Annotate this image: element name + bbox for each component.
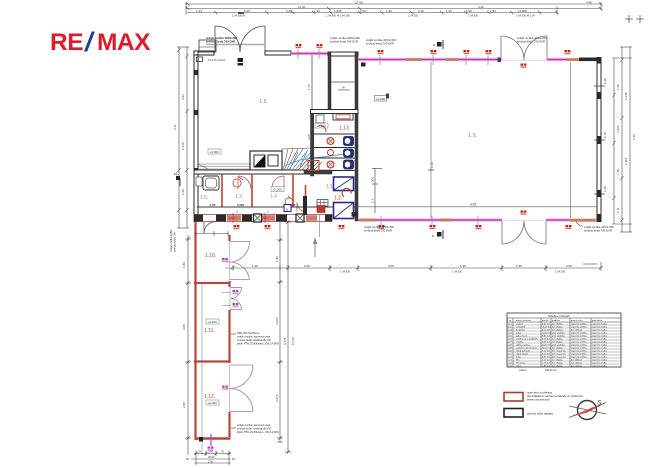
svg-text:obývací pokoj: obývací pokoj (516, 345, 530, 347)
svg-text:společenská místnost: společenská místnost (516, 347, 537, 350)
svg-text:1.90: 1.90 (460, 264, 466, 268)
svg-text:vápenná omítka: vápenná omítka (571, 344, 587, 347)
svg-text:ker. dlažba: ker. dlažba (552, 365, 563, 368)
svg-text:1.10.: 1.10. (205, 253, 216, 259)
svg-text:11.60: 11.60 (298, 5, 306, 9)
svg-text:vápenná malba: vápenná malba (592, 354, 608, 356)
svg-text:s1: s1 (174, 172, 178, 176)
svg-text:5.05: 5.05 (244, 9, 250, 13)
svg-text:1.40: 1.40 (252, 264, 258, 268)
svg-text:ker. dlažba: ker. dlažba (552, 362, 563, 365)
svg-text:vápenná omítka: vápenná omítka (571, 350, 587, 353)
svg-text:1.90: 1.90 (386, 9, 392, 13)
svg-text:vápenná malba: vápenná malba (592, 345, 608, 347)
svg-text:ker. dlažba: ker. dlažba (552, 347, 563, 350)
svg-text:1.75: 1.75 (307, 84, 311, 90)
svg-text:6.41: 6.41 (173, 124, 177, 130)
svg-text:2.445: 2.445 (181, 142, 185, 150)
svg-text:vápenná omítka: vápenná omítka (571, 326, 587, 329)
svg-text:1.04.300: 1.04.300 (555, 270, 566, 274)
svg-text:sklad zahradní: sklad zahradní (516, 350, 531, 353)
svg-text:překl. PTH 23,8/Keram., DN 14: překl. PTH 23,8/Keram., DN 14 SPO (237, 342, 279, 346)
svg-text:RE: RE (50, 29, 83, 56)
svg-text:WC ženy: WC ženy (516, 363, 526, 365)
svg-text:pokoj: pokoj (516, 333, 522, 335)
svg-text:8,20 m2: 8,20 m2 (542, 339, 551, 341)
svg-text:vápenná malba: vápenná malba (592, 351, 608, 353)
svg-text:vápenná omítka: vápenná omítka (571, 335, 587, 338)
svg-text:+0,000: +0,000 (376, 97, 386, 101)
svg-text:vápenná omítka: vápenná omítka (571, 353, 587, 356)
svg-text:8,90 m2: 8,90 m2 (542, 357, 551, 359)
svg-text:1.20: 1.20 (430, 162, 434, 168)
svg-text:poznámka: poznámka (592, 320, 603, 322)
svg-text:Tabulka místností: Tabulka místností (548, 314, 570, 318)
svg-text:vápenná omítka: vápenná omítka (571, 338, 587, 341)
svg-text:původní zdivo stávající: původní zdivo stávající (527, 412, 554, 416)
svg-text:1.05: 1.05 (210, 203, 216, 207)
svg-text:schodiště: schodiště (516, 326, 526, 329)
svg-text:vápenná omítka: vápenná omítka (571, 323, 587, 326)
svg-text:zrnitost šedá 700 DXR: zrnitost šedá 700 DXR (366, 42, 394, 46)
svg-text:1.04.300: 1.04.300 (340, 270, 351, 274)
svg-text:vápenná malba: vápenná malba (592, 360, 608, 362)
svg-text:vnější omítka, kamenná vata: vnější omítka, kamenná vata (237, 335, 271, 339)
svg-text:celkem: celkem (519, 369, 527, 372)
svg-text:ker. obklad: ker. obklad (571, 359, 582, 362)
svg-text:4.40: 4.40 (478, 5, 484, 9)
svg-text:ker. dlažba: ker. dlažba (552, 341, 563, 344)
svg-text:1.11: 1.11 (616, 207, 620, 213)
svg-text:vápenná malba: vápenná malba (592, 333, 608, 335)
svg-text:14,30 m2: 14,30 m2 (542, 333, 552, 335)
svg-text:č.m.: č.m. (508, 320, 513, 322)
svg-text:1.4.: 1.4. (270, 194, 278, 200)
svg-text:1.13: 1.13 (339, 126, 349, 132)
svg-text:vápenná malba: vápenná malba (592, 357, 608, 359)
svg-text:1.04.300 M: 1.04.300 M (232, 14, 245, 18)
svg-text:vápenná omítka: vápenná omítka (571, 332, 587, 335)
svg-text:vápenná malba: vápenná malba (592, 339, 608, 341)
svg-text:17.40: 17.40 (355, 0, 363, 4)
svg-text:3.225: 3.225 (275, 317, 279, 325)
svg-text:pokoj hosté: pokoj hosté (516, 335, 528, 338)
svg-text:9,80 m2: 9,80 m2 (542, 336, 551, 338)
svg-text:3.00: 3.00 (388, 264, 394, 268)
svg-text:+0,000: +0,000 (273, 188, 283, 192)
svg-text:4.05: 4.05 (470, 203, 476, 207)
svg-text:11,20 m2: 11,20 m2 (542, 327, 552, 329)
svg-text:SDK 300 S/125mm: SDK 300 S/125mm (237, 331, 259, 335)
svg-text:5,60 m2: 5,60 m2 (542, 324, 551, 326)
svg-text:nové zdivo a překlady: nové zdivo a překlady (527, 391, 553, 395)
svg-text:10.00: 10.00 (291, 337, 295, 345)
svg-text:1.90: 1.90 (208, 450, 214, 454)
svg-text:1.90: 1.90 (516, 264, 522, 268)
svg-text:86,10 m2: 86,10 m2 (542, 348, 552, 350)
svg-text:překl. PTH 23,8/Keram., DN 14: překl. PTH 23,8/Keram., DN 14 SPO (237, 430, 279, 434)
svg-text:1.30: 1.30 (446, 9, 452, 13)
svg-text:2.60: 2.60 (208, 459, 214, 463)
svg-text:zrnitost šedá 700 DXR: zrnitost šedá 700 DXR (364, 229, 392, 233)
svg-text:+0,000: +0,000 (210, 150, 220, 154)
svg-text:1.5.: 1.5. (200, 195, 208, 201)
svg-text:chodba: chodba (516, 342, 524, 344)
svg-text:W: W (342, 86, 345, 90)
svg-text:1.50: 1.50 (490, 9, 496, 13)
svg-text:vápenná malba: vápenná malba (592, 348, 608, 350)
svg-text:1.3.: 1.3. (235, 194, 243, 200)
svg-text:vápenná malba: vápenná malba (592, 330, 608, 332)
svg-text:1.9.: 1.9. (468, 133, 478, 139)
svg-text:2.00: 2.00 (304, 264, 310, 268)
svg-text:zrnitost šedá, tloušťka dle PD: zrnitost šedá, tloušťka dle PD (237, 338, 271, 342)
svg-text:vápenná omítka: vápenná omítka (571, 347, 587, 350)
svg-text:2,10 m2: 2,10 m2 (542, 363, 551, 365)
svg-text:1.8.: 1.8. (259, 99, 269, 105)
svg-text:3.075: 3.075 (275, 394, 279, 402)
svg-text:11.805: 11.805 (518, 9, 527, 13)
svg-text:1.48: 1.48 (616, 84, 620, 90)
svg-text:vnější omítka 425/2: vnější omítka 425/2 (169, 229, 173, 252)
svg-text:1.4: 1.4 (371, 198, 375, 203)
svg-text:vápenná malba: vápenná malba (592, 363, 608, 365)
svg-text:ker. dlažba: ker. dlažba (552, 326, 563, 329)
svg-text:sklad nářadí: sklad nářadí (516, 354, 528, 356)
svg-text:1.11.: 1.11. (204, 328, 215, 334)
svg-text:1,80 m2: 1,80 m2 (542, 366, 551, 368)
svg-text:4.94: 4.94 (181, 94, 185, 100)
svg-text:vápenná omítka: vápenná omítka (571, 341, 587, 344)
svg-text:bet. mazanina: bet. mazanina (552, 353, 567, 356)
svg-text:1.04.300: 1.04.300 (468, 14, 479, 18)
svg-text:2.115: 2.115 (624, 157, 628, 165)
svg-text:bet. mazanina: bet. mazanina (552, 350, 567, 353)
svg-text:ker. dlažba: ker. dlažba (552, 338, 563, 341)
svg-text:zádveří: zádveří (516, 324, 524, 326)
svg-text:koupelna: koupelna (516, 330, 526, 332)
svg-text:plov. podlaha: plov. podlaha (552, 333, 566, 335)
svg-text:2.10: 2.10 (603, 78, 607, 84)
svg-text:vápenná malba: vápenná malba (592, 336, 608, 338)
svg-text:s: s (432, 234, 434, 238)
svg-text:s: s (433, 43, 435, 47)
svg-text:5,10 m2: 5,10 m2 (542, 351, 551, 353)
svg-text:1.04.300: 1.04.300 (452, 270, 463, 274)
svg-text:6,10 m2: 6,10 m2 (542, 330, 551, 332)
svg-text:1.50: 1.50 (466, 9, 472, 13)
svg-text:2.10: 2.10 (603, 132, 607, 138)
svg-text:2.10: 2.10 (603, 186, 607, 192)
svg-text:dílna: dílna (516, 357, 522, 359)
svg-text:2.50: 2.50 (566, 264, 572, 268)
svg-text:2.345: 2.345 (624, 92, 628, 100)
svg-text:S: S (597, 400, 602, 407)
svg-text:vápenná malba: vápenná malba (592, 327, 608, 329)
svg-text:1.80: 1.80 (275, 256, 279, 262)
svg-text:+0,000: +0,000 (208, 320, 218, 324)
svg-text:1.30: 1.30 (314, 9, 320, 13)
svg-text:MAX: MAX (97, 29, 151, 56)
svg-text:h=4.76 +0.0m: h=4.76 +0.0m (208, 58, 226, 62)
svg-text:1.12.: 1.12. (204, 394, 215, 400)
svg-text:plocha: plocha (542, 320, 549, 322)
svg-text:ker. dlažba: ker. dlažba (552, 329, 563, 332)
svg-text:2.40: 2.40 (418, 9, 424, 13)
svg-text:ker. dlažba: ker. dlažba (552, 323, 563, 326)
svg-text:1.04.300 M 1.04.300: 1.04.300 M 1.04.300 (326, 14, 350, 18)
svg-text:1.60: 1.60 (181, 189, 185, 195)
svg-text:ker. dlažba: ker. dlažba (552, 359, 563, 362)
svg-text:WC: WC (516, 360, 520, 362)
svg-text:215,40 m2: 215,40 m2 (545, 369, 557, 372)
svg-text:1.44: 1.44 (196, 9, 202, 13)
svg-text:6.46: 6.46 (632, 134, 636, 140)
svg-text:plov. podlaha: plov. podlaha (552, 336, 566, 338)
svg-text:3.05: 3.05 (182, 324, 186, 330)
svg-text:ker. obklad: ker. obklad (571, 329, 582, 332)
svg-text:9.475: 9.475 (283, 337, 287, 345)
svg-text:zrnitost šedá, tloušťka dle PD: zrnitost šedá, tloušťka dle PD (237, 427, 271, 431)
svg-text:chodba se schodištěm: chodba se schodištěm (516, 338, 538, 341)
svg-text:bet. mazanina: bet. mazanina (552, 356, 567, 359)
svg-text:2.95: 2.95 (182, 402, 186, 408)
svg-text:úklid: úklid (516, 366, 521, 368)
svg-text:+0,000: +0,000 (208, 401, 218, 405)
svg-text:u: u (286, 207, 288, 212)
svg-text:9,10 m2: 9,10 m2 (542, 354, 551, 356)
svg-text:zrnitost šedá 700 DXR: zrnitost šedá 700 DXR (584, 229, 612, 233)
svg-text:6,40 m2: 6,40 m2 (542, 342, 551, 344)
svg-text:2.065: 2.065 (237, 203, 244, 207)
svg-text:ker. obklad: ker. obklad (571, 365, 582, 368)
svg-text:38,60 m2: 38,60 m2 (542, 345, 552, 347)
svg-text:1.48: 1.48 (616, 169, 620, 175)
svg-text:podlaha: podlaha (552, 320, 561, 322)
svg-text:vápenná malba: vápenná malba (592, 324, 608, 326)
svg-text:vnější omítka, kamenná vata: vnější omítka, kamenná vata (237, 423, 271, 427)
svg-text:vápenná malba: vápenná malba (592, 366, 608, 368)
svg-text:4.46: 4.46 (586, 0, 592, 4)
svg-text:2,10 m2: 2,10 m2 (542, 360, 551, 362)
svg-text:povrch stěn: povrch stěn (571, 319, 583, 322)
svg-text:1.04.300 M 1.04: 1.04.300 M 1.04 (516, 14, 535, 18)
svg-text:1.80: 1.80 (182, 262, 186, 268)
svg-text:vápenná omítka: vápenná omítka (571, 356, 587, 359)
svg-text:zrnitost šedá 700 DXR: zrnitost šedá 700 DXR (330, 40, 358, 44)
svg-text:300: 300 (371, 177, 375, 182)
svg-text:název místnosti: název místnosti (516, 319, 532, 322)
svg-text:1.205: 1.205 (334, 9, 342, 13)
svg-text:zrnitost šedá 700: zrnitost šedá 700 (173, 232, 177, 252)
svg-text:45.40: 45.40 (208, 455, 215, 459)
svg-text:plov. podlaha: plov. podlaha (552, 345, 566, 347)
svg-text:ker. obklad: ker. obklad (571, 362, 582, 365)
svg-text:vápenná malba: vápenná malba (592, 342, 608, 344)
svg-text:plynosilikátové tvárnice a pře: plynosilikátové tvárnice a překlady vč. … (527, 394, 583, 398)
svg-text:zelezo vyztužených: zelezo vyztužených (527, 398, 550, 402)
svg-text:2.625: 2.625 (616, 125, 620, 133)
svg-text:1.2.: 1.2. (334, 196, 342, 202)
